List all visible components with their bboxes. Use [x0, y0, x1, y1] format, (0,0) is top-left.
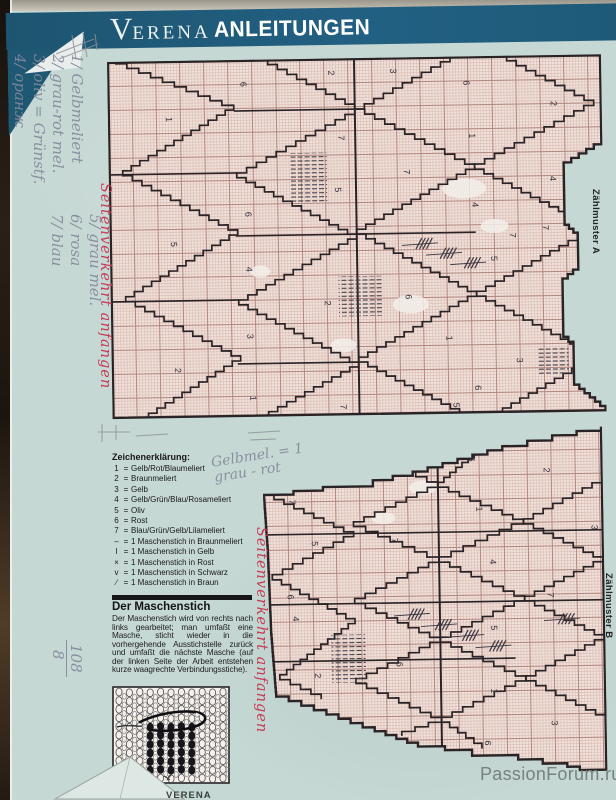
- svg-text:2: 2: [326, 70, 336, 75]
- legend-text: 1 Maschenstich in Gelb: [131, 547, 214, 557]
- maschenstich-title: Der Maschenstich: [112, 601, 210, 613]
- legend-symbol: 5: [112, 506, 121, 516]
- legend-text: Oliv: [131, 506, 145, 516]
- magazine-page: VERENA ANLEITUNGEN 162362717544677554263…: [0, 0, 616, 800]
- legend-text: Rost: [131, 516, 147, 526]
- legend-equals: =: [121, 578, 131, 588]
- legend-equals: =: [121, 474, 131, 484]
- svg-text:1: 1: [248, 396, 258, 401]
- pencil-line: 8: [49, 640, 66, 677]
- svg-text:5: 5: [451, 402, 461, 407]
- symbol-legend: Zeichenerklärung: 1=Gelb/Rot/Blaumeliert…: [112, 452, 312, 589]
- svg-text:7: 7: [390, 538, 400, 543]
- knitting-chart-a: 1623627175446775542631236175: [107, 54, 607, 420]
- legend-text: Gelb: [131, 485, 148, 495]
- legend-item: ∕=1 Maschenstich in Braun: [112, 578, 312, 588]
- svg-text:1: 1: [444, 336, 454, 341]
- maschenstich-body: Der Maschenstich wird von rechts nach li…: [112, 615, 253, 675]
- legend-text: 1 Maschenstich in Braunmeliert: [131, 537, 243, 547]
- pencil-line: 7/ blau: [47, 214, 66, 306]
- legend-text: 1 Maschenstich in Braun: [131, 578, 219, 588]
- legend-item: 2=Braunmeliert: [112, 474, 312, 484]
- svg-text:2: 2: [542, 467, 552, 472]
- svg-text:2: 2: [549, 101, 559, 106]
- red-note-2: Seitenverkehrt anfangen: [253, 527, 269, 733]
- pencil-line: 6/ rosa: [66, 214, 85, 306]
- legend-equals: =: [121, 537, 131, 547]
- legend-item: I=1 Maschenstich in Gelb: [112, 547, 312, 557]
- svg-text:1: 1: [489, 688, 499, 693]
- svg-text:7: 7: [508, 233, 518, 238]
- svg-text:6: 6: [243, 212, 253, 217]
- pencil-line: 3/ oliv = Grünstf.: [29, 54, 48, 185]
- svg-text:3: 3: [550, 720, 560, 725]
- watermark: PassionForum.ru: [480, 764, 616, 785]
- svg-text:6: 6: [404, 294, 414, 299]
- svg-text:3: 3: [515, 357, 525, 362]
- svg-text:5: 5: [169, 242, 179, 247]
- legend-symbol: 6: [112, 516, 121, 526]
- legend-symbol: ×: [112, 558, 121, 568]
- pencil-line: 4/ оранж: [10, 54, 29, 185]
- svg-text:7: 7: [541, 225, 551, 230]
- svg-text:2: 2: [313, 673, 323, 678]
- svg-text:6: 6: [473, 385, 483, 390]
- legend-text: 1 Maschenstich in Schwarz: [131, 568, 228, 578]
- svg-text:4: 4: [470, 202, 480, 207]
- legend-equals: =: [121, 568, 131, 578]
- footer-brand: VERENA: [166, 790, 212, 800]
- section-rule: [112, 595, 252, 600]
- svg-text:4: 4: [244, 267, 254, 272]
- svg-text:6: 6: [461, 80, 471, 85]
- legend-equals: =: [121, 464, 131, 474]
- pencil-scribble-below-chart: [96, 420, 176, 446]
- svg-text:3: 3: [590, 525, 600, 530]
- legend-equals: =: [121, 558, 131, 568]
- pencil-line: 108: [66, 640, 84, 677]
- legend-symbol: I: [112, 547, 121, 557]
- pencil-fraction: 1088: [49, 640, 84, 677]
- legend-text: Gelb/Rot/Blaumeliert: [131, 464, 205, 474]
- legend-symbol: ∕: [112, 578, 121, 588]
- legend-symbol: 2: [112, 474, 121, 484]
- svg-text:5: 5: [333, 187, 343, 192]
- svg-text:6: 6: [483, 740, 493, 745]
- legend-equals: =: [121, 516, 131, 526]
- svg-text:1: 1: [467, 133, 477, 138]
- legend-item: 4=Gelb/Grün/Blau/Rosameliert: [112, 495, 312, 505]
- legend-item: –=1 Maschenstich in Braunmeliert: [112, 537, 312, 547]
- svg-text:2: 2: [173, 368, 183, 373]
- svg-text:7: 7: [338, 404, 348, 409]
- svg-text:2: 2: [323, 300, 333, 305]
- pencil-color-list-1: 1/ Gelbmeliert2/ grau-rot mel.3/ oliv = …: [10, 54, 86, 185]
- legend-equals: =: [121, 547, 131, 557]
- svg-text:1: 1: [474, 507, 484, 512]
- svg-text:5: 5: [489, 625, 499, 630]
- legend-equals: =: [121, 506, 131, 516]
- legend-equals: =: [121, 485, 131, 495]
- svg-text:6: 6: [238, 82, 248, 87]
- legend-item: v=1 Maschenstich in Schwarz: [112, 568, 312, 578]
- brand-logo: VERENA: [110, 12, 211, 46]
- legend-items: 1=Gelb/Rot/Blaumeliert2=Braunmeliert3=Ge…: [112, 464, 312, 589]
- brand-rest: ERENA: [132, 22, 211, 44]
- chart-b-label: Zählmuster B: [603, 573, 614, 639]
- legend-text: Gelb/Grün/Blau/Rosameliert: [131, 495, 231, 505]
- pencil-color-list-2: 5/ grau mel.6/ rosa7/ blau: [47, 214, 104, 306]
- pencil-line: 2/ grau-rot mel.: [48, 54, 67, 185]
- pencil-scribble-mid: [246, 428, 286, 448]
- legend-symbol: 1: [112, 464, 121, 474]
- legend-item: 6=Rost: [112, 516, 312, 526]
- pencil-scribble-top: [50, 32, 116, 62]
- pencil-line: 5/ grau mel.: [85, 214, 104, 306]
- svg-text:6: 6: [286, 594, 296, 599]
- pencil-line: 1/ Gelbmeliert: [67, 54, 86, 185]
- legend-symbol: 4: [112, 495, 121, 505]
- legend-symbol: –: [112, 537, 121, 547]
- legend-item: 5=Oliv: [112, 506, 312, 516]
- chart-a-label: Zählmuster A: [590, 189, 601, 254]
- svg-text:5: 5: [489, 256, 499, 261]
- legend-text: 1 Maschenstich in Rost: [131, 558, 214, 568]
- svg-text:3: 3: [245, 334, 255, 339]
- svg-text:7: 7: [402, 169, 412, 174]
- legend-text: Blau/Grün/Gelb/Lilameliert: [131, 526, 225, 536]
- legend-symbol: v: [112, 568, 121, 578]
- legend-text: Braunmeliert: [131, 474, 176, 484]
- section-title: ANLEITUNGEN: [214, 14, 371, 42]
- knitting-chart-b: 7564237662145173367: [262, 425, 607, 778]
- svg-text:4: 4: [291, 616, 301, 621]
- svg-text:4: 4: [548, 176, 558, 181]
- legend-equals: =: [121, 495, 131, 505]
- legend-item: ×=1 Maschenstich in Rost: [112, 558, 312, 568]
- svg-text:7: 7: [336, 135, 346, 140]
- legend-symbol: 3: [112, 485, 121, 495]
- svg-text:1: 1: [164, 117, 174, 122]
- svg-text:4: 4: [488, 559, 498, 564]
- svg-text:3: 3: [289, 708, 299, 713]
- legend-symbol: 7: [112, 526, 121, 536]
- legend-equals: =: [121, 526, 131, 536]
- legend-item: 7=Blau/Grün/Gelb/Lilameliert: [112, 526, 312, 536]
- legend-item: 3=Gelb: [112, 485, 312, 495]
- svg-text:6: 6: [395, 662, 405, 667]
- svg-text:3: 3: [388, 68, 398, 73]
- svg-text:7: 7: [546, 592, 556, 597]
